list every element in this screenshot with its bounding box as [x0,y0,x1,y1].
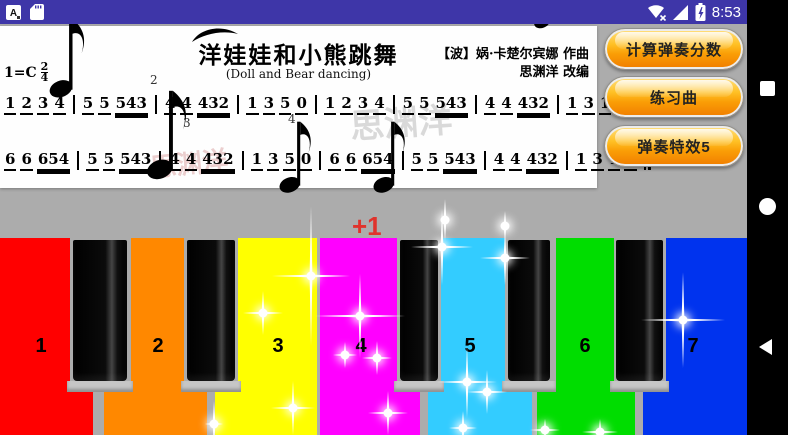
wifi-off-icon [647,4,667,21]
jianpu-note: 5 [411,150,423,171]
jianpu-note: 3 [37,94,49,115]
piano-key-2[interactable] [131,238,184,392]
recents-button[interactable] [760,81,775,96]
piano-key-3[interactable] [238,238,317,392]
jianpu-note: 6 [20,150,32,171]
jianpu-note: 654 [361,150,394,171]
clock: 8:53 [712,4,741,21]
composer-line: 【波】娲·卡楚尔宾娜 作曲 [437,46,589,64]
jianpu-note: 1 [566,94,578,115]
piano-key-1[interactable] [0,238,70,392]
status-bar-right: 8:53 [647,3,741,22]
piano-key-5[interactable] [441,238,505,392]
jianpu-note: 1 [4,94,16,115]
piano-black-key[interactable] [508,240,550,381]
navigation-bar [747,0,788,435]
composer-credits: 【波】娲·卡楚尔宾娜 作曲 思渊洋 改编 [437,46,589,82]
jianpu-note: 5 [86,150,98,171]
annotation-digit: 2 [150,73,158,87]
jianpu-note: 4 [180,94,192,115]
back-button[interactable] [759,339,772,355]
jianpu-note: 5 [82,94,94,115]
jianpu-note: 543 [119,150,152,171]
input-method-icon: A [6,5,21,20]
notation-line-2: 66654555434443213506665455543444321310 [2,150,651,171]
sparkle-icon [440,199,450,241]
piano-black-key[interactable] [73,240,127,381]
piano-black-key[interactable] [400,240,438,381]
jianpu-note: 1 [324,94,336,115]
piano-black-key[interactable] [187,240,235,381]
jianpu-note: 1 [575,150,587,171]
jianpu-note: 0 [295,94,307,115]
piano-key-3-lower[interactable] [215,392,317,435]
jianpu-note: 3 [263,94,275,115]
piano-key-6[interactable] [556,238,614,392]
bonus-indicator: +1 [352,211,382,242]
app-screen: A 8:53 [0,0,788,435]
notation-line-1: 123455543444321350123455543444321310 [2,94,642,115]
jianpu-note: 4 [493,150,505,171]
barline [393,95,395,114]
barline [566,151,568,170]
jianpu-note: 4 [53,94,65,115]
jianpu-note: 4 [185,150,197,171]
jianpu-note: 432 [526,150,559,171]
black-key-ledge [67,381,133,392]
jianpu-note: 4 [168,150,180,171]
arranger-line: 思渊洋 改编 [437,64,589,82]
barline [475,95,477,114]
piano-key-2-lower[interactable] [104,392,207,435]
jianpu-note: 3 [582,94,594,115]
status-bar: A 8:53 [0,0,747,24]
jianpu-note: 2 [340,94,352,115]
annotation-digit: 4 [288,112,296,126]
jianpu-note: 3 [267,150,279,171]
jianpu-note: 4 [484,94,496,115]
piano-key-4[interactable] [320,238,397,392]
time-signature: 2 4 [41,62,49,83]
jianpu-note: 5 [283,150,295,171]
key-signature: 1=C 2 4 [4,62,48,83]
signal-icon [672,4,689,21]
jianpu-note: 5 [402,94,414,115]
battery-charging-icon [694,3,707,22]
status-bar-left: A [6,4,44,20]
barline [155,95,157,114]
jianpu-note: 543 [443,150,476,171]
barline [319,151,321,170]
jianpu-note: 1 [246,94,258,115]
piano-key-1-lower[interactable] [0,392,93,435]
jianpu-note: 543 [115,94,148,115]
barline [73,95,75,114]
barline [484,151,486,170]
black-key-ledge [502,381,556,392]
black-key-ledge [181,381,241,392]
barline [315,95,317,114]
piano-keyboard: 1234567 [0,238,747,435]
barline [242,151,244,170]
jianpu-note: 6 [4,150,16,171]
jianpu-note: 4 [373,94,385,115]
piano-key-5-lower[interactable] [428,392,532,435]
jianpu-note: 4 [164,94,176,115]
jianpu-note: 5 [418,94,430,115]
jianpu-note: 2 [20,94,32,115]
jianpu-note: 432 [201,150,234,171]
black-key-ledge [610,381,669,392]
jianpu-note: 543 [435,94,468,115]
play-effects-button[interactable]: 弹奏特效5 [604,125,744,167]
key-label: 1=C [4,65,37,81]
jianpu-note: 5 [427,150,439,171]
jianpu-note: 0 [300,150,312,171]
jianpu-note: 1 [251,150,263,171]
jianpu-note: 4 [509,150,521,171]
annotation-digit: 3 [183,116,191,130]
etude-button[interactable]: 练习曲 [604,76,744,118]
barline [402,151,404,170]
piano-key-6-lower[interactable] [537,392,635,435]
jianpu-note: 5 [98,94,110,115]
home-button[interactable] [759,198,776,215]
jianpu-note: 432 [197,94,230,115]
barline [557,95,559,114]
sdcard-icon [30,4,44,20]
sheet-music-panel: 思渊洋 思渊洋 洋娃娃和小熊跳舞 (Doll and Bear dancing)… [0,26,597,188]
jianpu-note: 432 [517,94,550,115]
piano-key-7-lower[interactable] [643,392,747,435]
sparkle-icon [501,211,509,241]
calc-score-button[interactable]: 计算弹奏分数 [604,28,744,70]
piano-key-7[interactable] [666,238,747,392]
jianpu-note: 654 [37,150,70,171]
piano-key-4-lower[interactable] [320,392,420,435]
barline [237,95,239,114]
jianpu-note: 3 [357,94,369,115]
black-key-ledge [394,381,444,392]
svg-text:A: A [10,8,17,19]
piano-black-key[interactable] [616,240,663,381]
jianpu-note: 6 [328,150,340,171]
jianpu-note: 3 [591,150,603,171]
jianpu-note: 4 [500,94,512,115]
jianpu-note: 6 [345,150,357,171]
jianpu-note: 5 [103,150,115,171]
barline [159,151,161,170]
barline [77,151,79,170]
